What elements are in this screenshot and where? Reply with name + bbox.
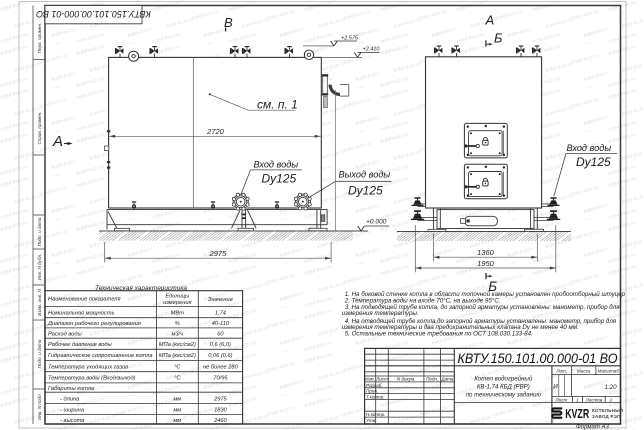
svg-text:Вход воды: Вход воды xyxy=(254,159,299,169)
svg-text:Н.контр.: Н.контр. xyxy=(366,412,385,417)
svg-text:1360: 1360 xyxy=(477,248,495,257)
svg-text:И: И xyxy=(553,383,558,390)
svg-text:измерения: измерения xyxy=(163,300,191,306)
svg-text:+0.000: +0.000 xyxy=(366,219,387,226)
svg-text:70/95: 70/95 xyxy=(213,376,228,382)
svg-text:Подп. и дата: Подп. и дата xyxy=(37,217,42,246)
svg-text:Утв.: Утв. xyxy=(366,418,376,423)
svg-text:Температура воды (Вход/выход): Температура воды (Вход/выход) xyxy=(48,376,136,382)
svg-text:Инв. N подл.: Инв. N подл. xyxy=(37,393,42,420)
svg-text:+2.410: +2.410 xyxy=(363,47,381,53)
svg-text:Dy125: Dy125 xyxy=(576,155,611,169)
svg-text:40-110: 40-110 xyxy=(212,321,230,327)
svg-text:Значение: Значение xyxy=(208,297,233,303)
svg-text:Б: Б xyxy=(494,31,503,46)
svg-text:А: А xyxy=(52,133,63,150)
svg-text:Листов: Листов xyxy=(585,398,603,403)
svg-text:KVZR: KVZR xyxy=(565,406,589,421)
svg-text:Лист: Лист xyxy=(375,377,388,382)
svg-text:Гидравлическое сопротивление к: Гидравлическое сопротивление котла xyxy=(48,353,153,359)
svg-text:2975: 2975 xyxy=(213,397,227,403)
svg-text:%: % xyxy=(175,321,180,327)
svg-text:N докум.: N докум. xyxy=(397,377,416,382)
svg-text:Dy125: Dy125 xyxy=(262,172,297,186)
svg-text:- высота: - высота xyxy=(60,418,84,424)
svg-text:Разраб.: Разраб. xyxy=(366,383,383,388)
svg-text:Дата: Дата xyxy=(440,377,454,382)
svg-text:Выход воды: Выход воды xyxy=(339,170,391,180)
svg-text:Формат А3: Формат А3 xyxy=(576,425,609,430)
svg-text:МПа (кгс/см2): МПа (кгс/см2) xyxy=(159,353,196,359)
svg-text:м3/ч: м3/ч xyxy=(172,331,184,337)
svg-text:ЗАВОД РЭП: ЗАВОД РЭП xyxy=(592,414,621,419)
svg-text:Инв. N дубл.: Инв. N дубл. xyxy=(37,254,42,281)
svg-text:Единицы: Единицы xyxy=(165,294,190,300)
svg-text:мм: мм xyxy=(173,418,181,424)
svg-text:см. п. 1: см. п. 1 xyxy=(257,98,298,112)
svg-text:0,6 (6,0): 0,6 (6,0) xyxy=(210,342,231,348)
svg-text:Dy125: Dy125 xyxy=(348,183,383,197)
svg-text:°С: °С xyxy=(174,364,181,370)
svg-text:Изм.: Изм. xyxy=(365,377,375,382)
svg-text:1:20: 1:20 xyxy=(605,384,618,391)
svg-text:Наименование показателя: Наименование показателя xyxy=(48,297,121,303)
svg-text:мм: мм xyxy=(173,397,181,403)
svg-text:- длина: - длина xyxy=(60,397,79,403)
svg-text:Масса: Масса xyxy=(577,369,591,374)
svg-text:°С: °С xyxy=(174,376,181,382)
svg-text:Вход воды: Вход воды xyxy=(567,143,612,153)
svg-text:Котел водогрейный: Котел водогрейный xyxy=(474,376,533,383)
svg-text:60: 60 xyxy=(217,331,224,337)
svg-text:0,06 (0,6): 0,06 (0,6) xyxy=(208,353,232,359)
svg-text:мм: мм xyxy=(173,408,181,414)
svg-text:2: 2 xyxy=(609,398,613,403)
svg-text:1: 1 xyxy=(576,398,579,403)
svg-text:Т.контр.: Т.контр. xyxy=(366,395,385,400)
svg-text:1,74: 1,74 xyxy=(215,311,226,317)
svg-text:не более 280: не более 280 xyxy=(203,364,239,370)
svg-text:1950: 1950 xyxy=(477,259,495,268)
svg-text:МВт: МВт xyxy=(171,311,185,317)
svg-text:Подп.: Подп. xyxy=(426,377,438,382)
svg-text:А: А xyxy=(485,12,495,27)
svg-text:МПа (кгс/см2): МПа (кгс/см2) xyxy=(159,342,196,348)
svg-text:1830: 1830 xyxy=(214,408,227,414)
svg-text:измерения температуры.: измерения температуры. xyxy=(342,310,419,317)
svg-text:2720: 2720 xyxy=(206,127,225,136)
svg-text:Перв. примен.: Перв. примен. xyxy=(37,23,42,54)
svg-text:- ширина: - ширина xyxy=(60,408,84,414)
svg-text:КВ-1,74 КБД (РВР): КВ-1,74 КБД (РВР) xyxy=(477,384,530,391)
svg-text:2460: 2460 xyxy=(213,418,227,424)
svg-text:Температура уходящих газов: Температура уходящих газов xyxy=(48,364,128,370)
svg-text:2975: 2975 xyxy=(209,249,228,258)
svg-text:Справ. примен.: Справ. примен. xyxy=(37,111,42,144)
svg-text:Лист: Лист xyxy=(555,398,568,403)
svg-text:Подп. и дата: Подп. и дата xyxy=(37,339,42,368)
svg-text:Пров.: Пров. xyxy=(366,389,378,394)
svg-text:КОТЕЛЬНЫЙ: КОТЕЛЬНЫЙ xyxy=(592,408,623,413)
svg-text:по техническому заданию: по техническому заданию xyxy=(466,392,542,399)
svg-text:Габариты котла: Габариты котла xyxy=(48,386,94,392)
svg-text:5. Остальные технические треб: 5. Остальные технические требования по О… xyxy=(345,330,533,337)
svg-text:Диапазон рабочего регулировани: Диапазон рабочего регулирования xyxy=(47,321,141,327)
svg-text:Расход воды: Расход воды xyxy=(48,331,82,337)
svg-text:Рабочее давление воды: Рабочее давление воды xyxy=(48,342,113,348)
svg-text:КВТУ.150.101.00.000-01 ВО: КВТУ.150.101.00.000-01 ВО xyxy=(458,350,618,366)
svg-text:Номинальная мощность: Номинальная мощность xyxy=(48,311,114,317)
svg-text:Масштаб: Масштаб xyxy=(597,369,619,374)
svg-text:Взам. инв. N: Взам. инв. N xyxy=(37,288,42,315)
svg-text:Лит.: Лит. xyxy=(555,369,567,374)
svg-text:КВТУ.150.101.00.000-01 ВО: КВТУ.150.101.00.000-01 ВО xyxy=(36,9,151,19)
svg-text:+2.575: +2.575 xyxy=(341,36,359,42)
